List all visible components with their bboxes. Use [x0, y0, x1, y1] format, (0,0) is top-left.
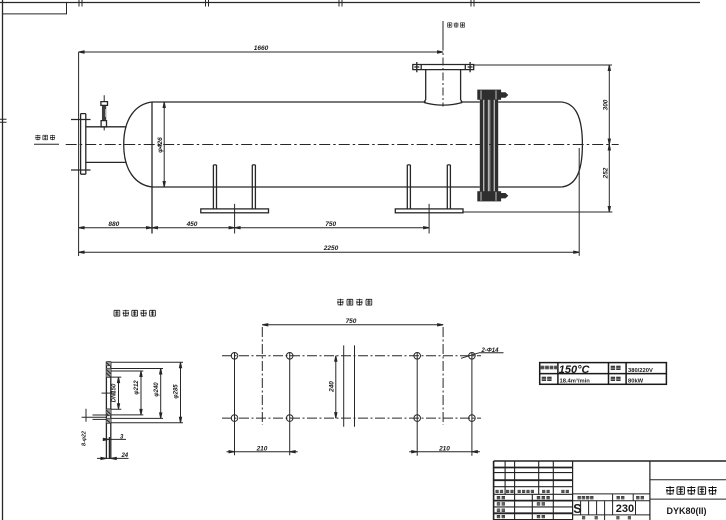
svg-text:880: 880 — [108, 221, 119, 228]
svg-text:8-φ22: 8-φ22 — [81, 431, 87, 446]
svg-text:1660: 1660 — [254, 45, 269, 52]
svg-text:φ212: φ212 — [134, 380, 140, 395]
svg-text:φ285: φ285 — [174, 384, 180, 399]
svg-text:80kW: 80kW — [628, 379, 644, 385]
svg-text:300: 300 — [602, 99, 609, 110]
svg-text:230: 230 — [616, 503, 634, 515]
svg-text:450: 450 — [186, 221, 198, 228]
svg-text:φ240: φ240 — [154, 382, 160, 397]
svg-text:210: 210 — [438, 445, 450, 452]
svg-text:380/220V: 380/220V — [628, 368, 653, 374]
svg-text:252: 252 — [602, 167, 609, 179]
svg-text:18.4m³/min: 18.4m³/min — [560, 378, 591, 385]
svg-text:750: 750 — [325, 221, 336, 228]
svg-text:750: 750 — [346, 318, 357, 325]
svg-text:DYK80(II): DYK80(II) — [667, 506, 707, 516]
svg-text:S: S — [573, 502, 581, 516]
svg-text:240: 240 — [328, 381, 335, 393]
svg-text:150°C: 150°C — [559, 364, 591, 376]
svg-text:210: 210 — [256, 445, 268, 452]
svg-text:2-Φ14: 2-Φ14 — [481, 348, 500, 354]
svg-text:24: 24 — [120, 453, 128, 459]
svg-text:DN150: DN150 — [112, 383, 118, 402]
svg-text:2250: 2250 — [323, 245, 339, 252]
svg-text:φ426: φ426 — [157, 137, 164, 153]
